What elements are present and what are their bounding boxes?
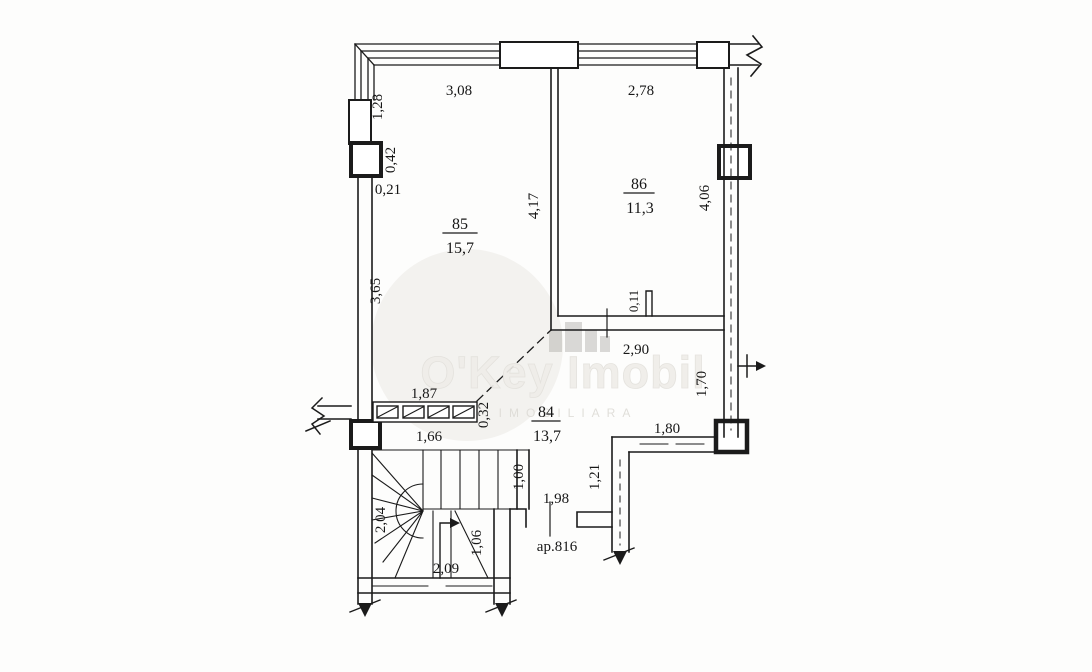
dim-0-21: 0,21 (375, 182, 401, 198)
dim-1-87: 1,87 (411, 386, 438, 402)
room-86-number: 86 (631, 176, 647, 193)
room-85-number: 85 (452, 216, 468, 233)
dim-2-78: 2,78 (628, 83, 654, 99)
room-84-area: 13,7 (533, 428, 561, 445)
dim-2-04: 2,04 (373, 506, 389, 533)
floorplan-drawing: O'Key Imobil IMOBILIARA 85 15,7 86 11,3 … (0, 0, 1092, 672)
dim-1-00: 1,00 (511, 464, 527, 490)
dim-4-06: 4,06 (697, 184, 713, 211)
entrance-wall (510, 502, 612, 536)
room-85-area: 15,7 (446, 240, 474, 257)
wall-cut-arrow-icon (350, 548, 634, 617)
dim-1-66: 1,66 (416, 429, 443, 445)
right-exterior-wall (724, 68, 738, 437)
watermark-tagline: IMOBILIARA (499, 406, 638, 420)
left-exterior-wall (358, 176, 372, 604)
dim-3-08: 3,08 (446, 83, 472, 99)
dim-0-42: 0,42 (383, 147, 399, 173)
dim-1-21: 1,21 (587, 464, 603, 490)
staircase (372, 450, 529, 578)
section-arrow-icon (738, 355, 766, 377)
entry-east-wall (612, 437, 629, 552)
dim-1-06: 1,06 (469, 529, 485, 556)
room-86-area: 11,3 (626, 200, 653, 217)
window-sill-hatched (373, 402, 477, 422)
window-pier (349, 42, 729, 144)
watermark-brand: O'Key Imobil (420, 347, 705, 398)
room-84-number: 84 (538, 404, 554, 421)
balcony-stub-wall (306, 398, 351, 434)
room84-south-wall (612, 437, 716, 452)
dim-0-32: 0,32 (476, 402, 492, 428)
dim-4-17: 4,17 (526, 192, 542, 219)
dim-3-65: 3,65 (368, 278, 384, 304)
dim-1-70: 1,70 (694, 371, 710, 397)
dim-0-11: 0,11 (626, 290, 641, 312)
wall-break-icon (747, 36, 762, 76)
dim-1-28: 1,28 (370, 94, 386, 120)
floorplan-page: O'Key Imobil IMOBILIARA 85 15,7 86 11,3 … (0, 0, 1092, 672)
apartment-number-label: ap.816 (537, 539, 578, 555)
dim-2-09: 2,09 (433, 561, 459, 577)
interior-wall-85-86 (551, 68, 558, 330)
dim-2-90: 2,90 (623, 342, 649, 358)
dim-1-80: 1,80 (654, 421, 680, 437)
stair-south-wall (358, 578, 510, 593)
dim-1-98: 1,98 (543, 491, 569, 507)
